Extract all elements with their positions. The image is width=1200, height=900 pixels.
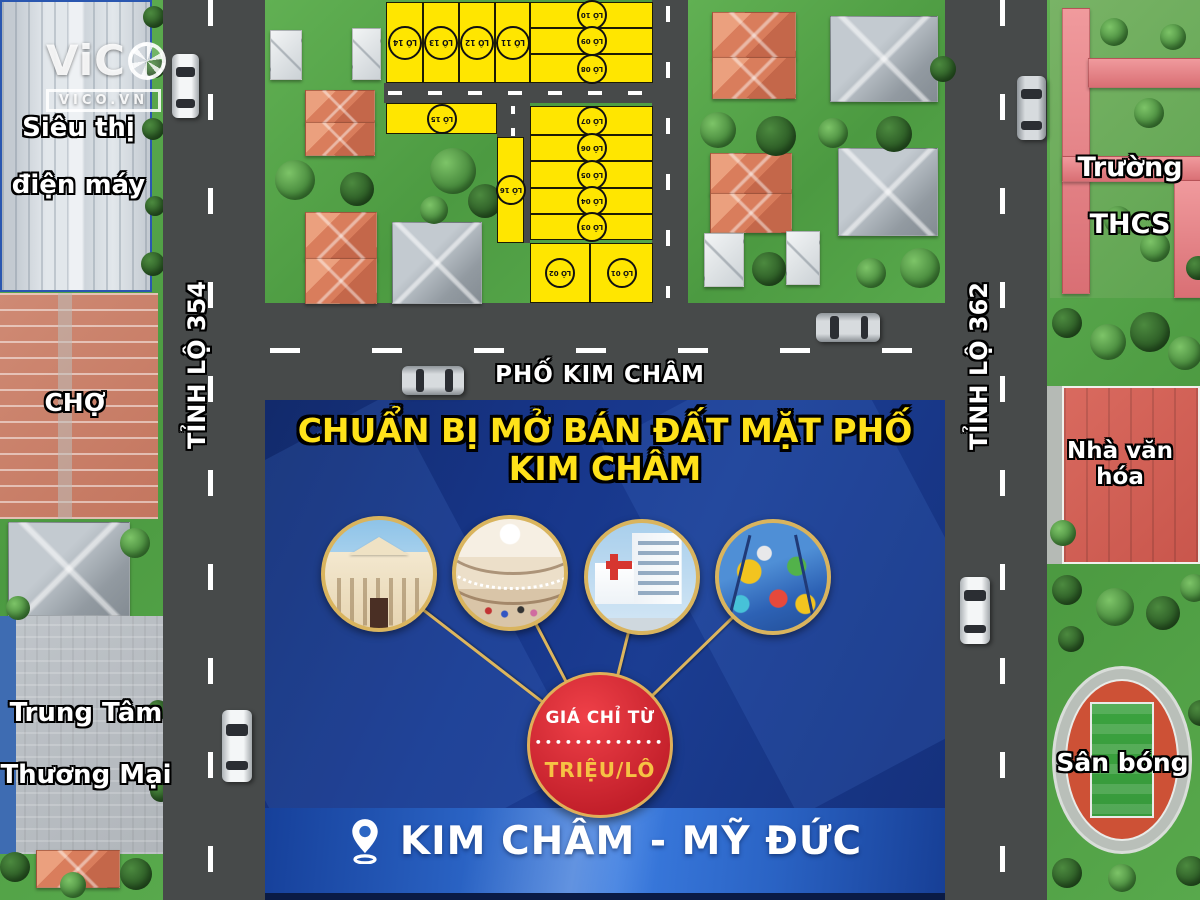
plot-number-circle: LÔ 11 [496,26,530,60]
pediment-decoration [349,537,409,555]
real-estate-map: ViC VICO.VN Siêu thị điện máy CHỢ Trung … [0,0,1200,900]
tree [856,258,886,288]
plot-lo-01: LÔ 01 [590,243,653,303]
tree [756,116,796,156]
road-label-pho-kim-cham: PHỐ KIM CHÂM [455,362,745,388]
plot-number-circle: LÔ 16 [496,175,526,205]
plot-lo-05: LÔ 05 [530,161,653,188]
tree [1134,98,1164,128]
market-label: CHỢ [0,388,150,417]
plot-lo-08: LÔ 08 [530,54,653,83]
tree [1096,588,1134,626]
tree [930,56,956,82]
road-center-line [270,348,942,353]
tree [876,116,912,152]
plot-number-circle: LÔ 09 [577,26,607,56]
price-unit: TRIỆU/LÔ [545,758,656,782]
plot-lo-12: LÔ 12 [459,2,495,83]
road-center-line [1000,0,1005,900]
playground-frame [794,534,815,619]
stadium-label: Sân bóng [1055,748,1190,777]
road-center-line [208,0,213,900]
price-prefix: GIÁ CHỈ TỪ [545,708,654,728]
house [352,28,381,80]
plot-lo-14: LÔ 14 [386,2,423,83]
car-icon [222,710,252,782]
plot-lo-09: LÔ 09 [530,28,653,54]
shopping-mall-photo [452,515,568,631]
tree [900,248,940,288]
tree [1052,575,1082,605]
tree [1146,596,1180,630]
tree [1160,24,1186,50]
lane-dashes [511,106,515,136]
tree [1058,626,1084,652]
tree [1052,308,1082,338]
road-label-tinh-lo-354: TỈNH LỘ 354 [183,281,211,449]
plot-number-circle: LÔ 13 [424,26,458,60]
ad-panel: CHUẨN BỊ MỞ BÁN ĐẤT MẶT PHỐ KIM CHÂM GIÁ… [265,400,945,900]
plot-number-circle: LÔ 14 [388,26,422,60]
tree [700,112,736,148]
house [712,57,796,99]
location-text: KIM CHÂM - MỸ ĐỨC [400,819,862,864]
tree [120,528,150,558]
culture-house-label: Nhà văn hóa [1040,438,1200,490]
panel-title-line1: CHUẨN BỊ MỞ BÁN ĐẤT [298,411,729,450]
price-badge: GIÁ CHỈ TỪ ••••••••••••• TRIỆU/LÔ [527,672,673,818]
plot-number-circle: LÔ 15 [427,104,457,134]
mall-lights-arc [452,528,568,590]
plot-number-circle: LÔ 08 [577,54,607,84]
tree [752,252,786,286]
tree [1052,858,1082,888]
tree [275,160,315,200]
car-icon [1017,76,1046,140]
plot-number-circle: LÔ 02 [545,258,575,288]
tree [1130,312,1170,352]
tree [143,6,165,28]
camera-aperture-icon [128,42,166,80]
panel-footer-strip [265,893,945,900]
tree [818,118,848,148]
watermark: ViC VICO.VN [46,36,166,112]
plot-lo-06: LÔ 06 [530,135,653,161]
plot-lo-11: LÔ 11 [495,2,530,83]
tree [120,858,152,890]
tree [340,172,374,206]
road-label-tinh-lo-362: TỈNH LỘ 362 [965,282,993,450]
plot-lo-10: LÔ 10 [530,2,653,28]
house [305,90,375,124]
tree [1090,324,1126,360]
tree [1100,18,1128,46]
price-placeholder-dots: ••••••••••••• [535,740,665,746]
tree [0,852,30,882]
plot-number-circle: LÔ 07 [577,106,607,136]
tree [420,196,448,224]
car-icon [172,54,199,118]
hospital-photo [584,519,700,635]
lane-dashes [666,6,670,298]
government-building-photo [321,516,437,632]
tree [1168,336,1200,370]
house [305,122,375,156]
playground-frame [728,535,752,620]
plot-number-circle: LÔ 03 [577,212,607,242]
plot-number-circle: LÔ 01 [607,258,637,288]
plot-lo-04: LÔ 04 [530,188,653,214]
tree [1108,864,1136,892]
tree [1050,520,1076,546]
house [830,16,938,102]
tree [60,872,86,898]
house [710,153,792,195]
location-row: KIM CHÂM - MỸ ĐỨC [265,818,945,864]
house [305,258,377,304]
lane-dashes [388,91,650,95]
tree [141,252,165,276]
house [710,193,792,233]
car-icon [816,313,880,342]
vico-logo: ViC [46,36,166,85]
playground-photo [715,519,831,635]
house [838,148,938,236]
tree [1180,574,1200,602]
plot-lo-15: LÔ 15 [386,103,497,134]
narrow-road [652,0,688,303]
school-building [1088,58,1200,88]
house [786,231,820,285]
house [712,12,796,59]
vico-domain: VICO.VN [46,89,161,112]
plot-lo-16: LÔ 16 [497,137,524,243]
plot-number-circle: LÔ 12 [460,26,494,60]
car-icon [960,577,990,644]
supermarket-label: Siêu thị điện máy [6,100,151,214]
house [305,212,377,260]
tree [6,596,30,620]
plot-lo-03: LÔ 03 [530,214,653,240]
trade-center-label: Trung Tâm Thương Mại [0,682,172,807]
tree [430,148,476,194]
house [392,222,482,304]
tree [1176,856,1200,886]
plot-number-circle: LÔ 06 [577,133,607,163]
house [704,233,744,287]
vico-logo-text: ViC [46,36,126,85]
plot-lo-13: LÔ 13 [423,2,459,83]
house [270,30,302,80]
plot-number-circle: LÔ 05 [577,160,607,190]
plot-lo-07: LÔ 07 [530,106,653,135]
school-label: Trường THCS [1060,140,1200,253]
panel-title: CHUẨN BỊ MỞ BÁN ĐẤT MẶT PHỐ KIM CHÂM [265,412,945,489]
plot-lo-02: LÔ 02 [530,243,590,303]
location-pin-icon [348,818,382,864]
